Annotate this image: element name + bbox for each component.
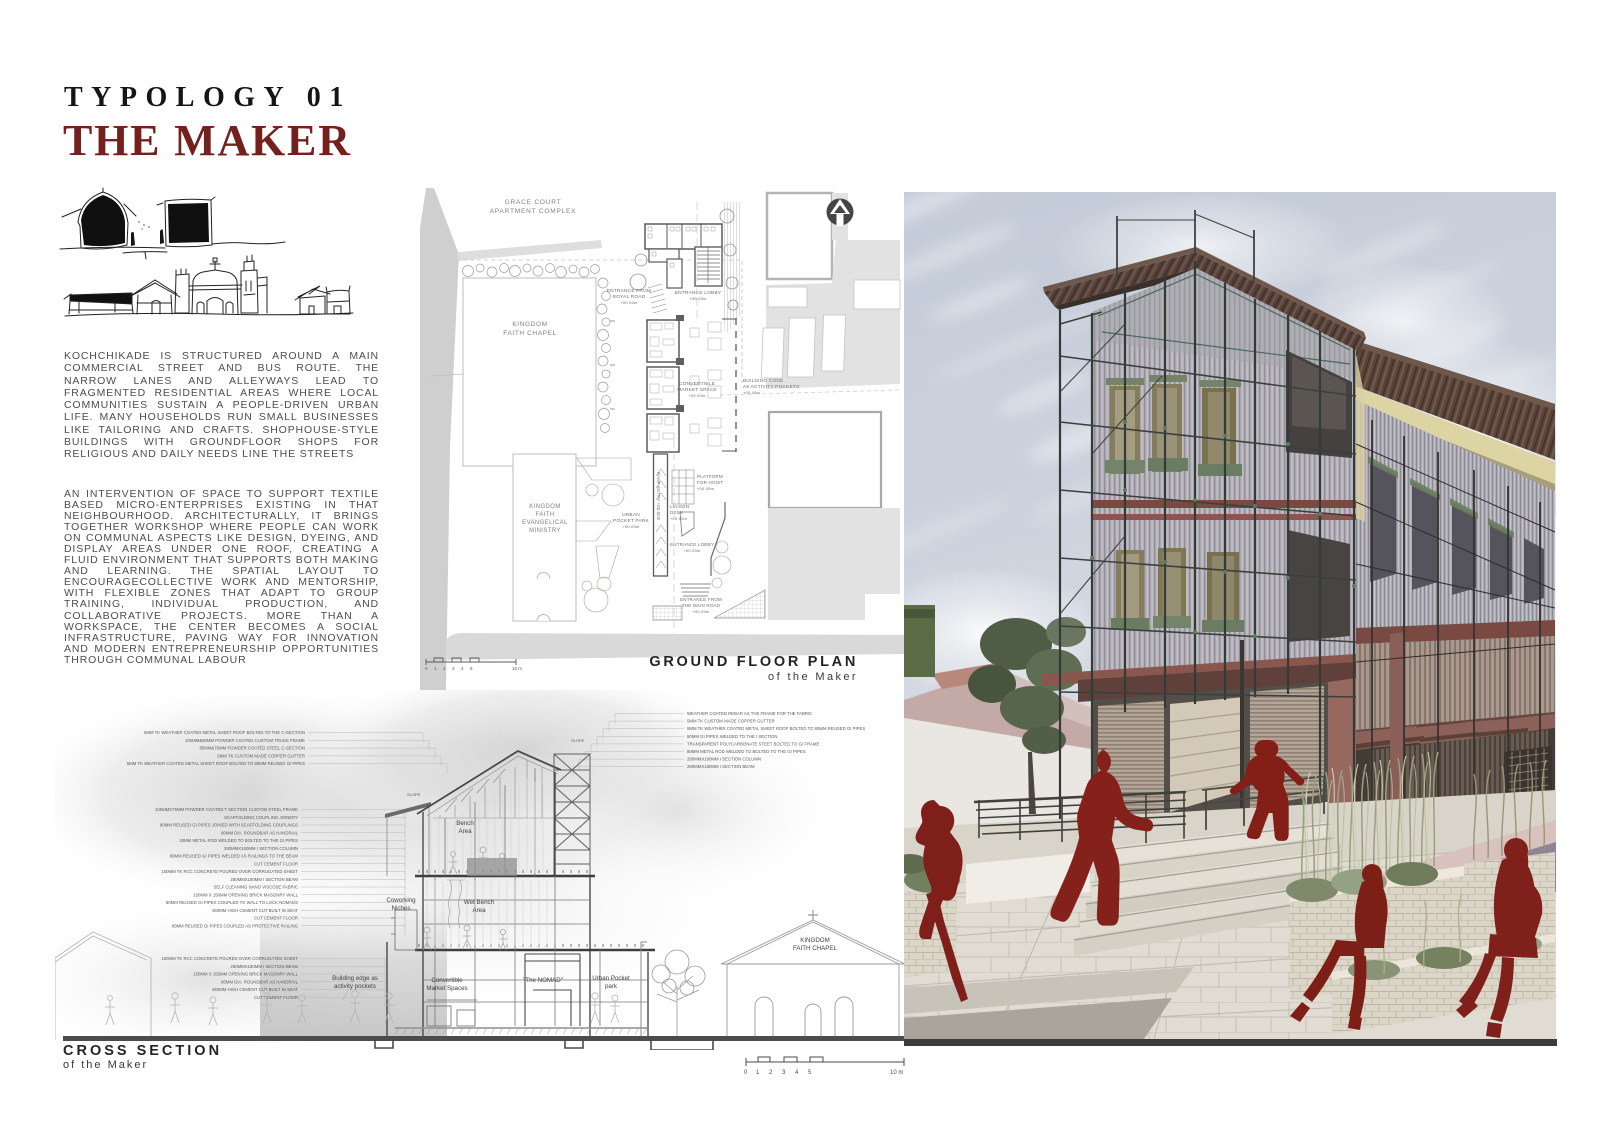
svg-text:CONVERTIBLE: CONVERTIBLE [679, 381, 715, 387]
svg-text:CUT CEMENT FLOOR: CUT CEMENT FLOOR [254, 995, 298, 1000]
svg-text:FAITH CHAPEL: FAITH CHAPEL [503, 330, 556, 337]
svg-text:85MM&70MM POWDER COATED STEEL: 85MM&70MM POWDER COATED STEEL C-SECTION [199, 746, 305, 751]
svg-text:Bench: Bench [456, 820, 474, 827]
svg-text:APARTMENT COMPLEX: APARTMENT COMPLEX [490, 208, 577, 215]
svg-text:Urban Pocket: Urban Pocket [592, 975, 630, 982]
svg-text:150MM X 150MM OPENING BRICK MA: 150MM X 150MM OPENING BRICK MASONRY WALL [193, 972, 298, 977]
svg-text:Coworking: Coworking [386, 897, 416, 904]
svg-text:KINGDOM: KINGDOM [529, 504, 560, 510]
svg-text:280MMX180MM I SECTION COLUMN: 280MMX180MM I SECTION COLUMN [224, 846, 298, 851]
svg-text:150MM TK RCC CONCRETE POURED O: 150MM TK RCC CONCRETE POURED OVER CORRUG… [161, 956, 298, 961]
svg-text:CUT CEMENT FLOOR: CUT CEMENT FLOOR [254, 916, 298, 921]
svg-text:100MM&80MM POWDER COATED CUSTO: 100MM&80MM POWDER COATED CUSTOM TRUSS FR… [185, 738, 305, 743]
svg-text:PLATFORM: PLATFORM [697, 474, 723, 479]
svg-text:ENTRANCE FROM: ENTRANCE FROM [607, 288, 651, 294]
svg-text:10 m: 10 m [890, 1070, 903, 1076]
svg-text:LIAISON: LIAISON [670, 504, 689, 509]
svg-text:5: 5 [808, 1070, 812, 1076]
svg-text:SELF CLEANING NANO VISCOSE FAB: SELF CLEANING NANO VISCOSE FABRIC [213, 885, 298, 890]
svg-text:URBAN: URBAN [622, 512, 640, 518]
svg-text:park: park [605, 983, 618, 990]
svg-text:ENTRANCE LOBBY: ENTRANCE LOBBY [670, 542, 714, 547]
svg-text:Wet Bench: Wet Bench [464, 899, 495, 906]
svg-text:activity pockets: activity pockets [334, 983, 376, 990]
svg-text:5MM TK WEATHER COATED METAL SH: 5MM TK WEATHER COATED METAL SHEET ROOF B… [127, 761, 305, 766]
svg-text:80MM METAL ROD WELDED TO BOLTE: 80MM METAL ROD WELDED TO BOLTED TO THE G… [687, 749, 806, 754]
svg-text:5MM TK CUSTOM MADE COPPER GUTT: 5MM TK CUSTOM MADE COPPER GUTTER [687, 719, 775, 724]
svg-text:SLOPE: SLOPE [407, 792, 421, 797]
svg-text:MINISTRY: MINISTRY [529, 528, 561, 534]
svg-text:4: 4 [795, 1070, 799, 1076]
svg-text:80MM DIA. ROUNDBAR AS HANDRAIL: 80MM DIA. ROUNDBAR AS HANDRAIL [221, 830, 298, 835]
svg-text:+00.00m: +00.00m [670, 516, 688, 521]
svg-text:450MM HIGH CEMENT CUT BUILT IN: 450MM HIGH CEMENT CUT BUILT IN SEAT [212, 987, 298, 992]
svg-text:280MMX180MM I SECTION BEAM: 280MMX180MM I SECTION BEAM [230, 877, 298, 882]
svg-text:5: 5 [470, 666, 473, 671]
svg-text:KINGDOM: KINGDOM [800, 937, 830, 944]
svg-text:CUT CEMENT FLOOR: CUT CEMENT FLOOR [254, 861, 298, 866]
svg-text:Niches: Niches [392, 905, 411, 912]
svg-text:1: 1 [756, 1070, 760, 1076]
svg-text:0: 0 [744, 1070, 748, 1076]
svg-text:450MM HIGH CEMENT CUT BUILT IN: 450MM HIGH CEMENT CUT BUILT IN SEAT [212, 908, 298, 913]
svg-text:5MM TK CUSTOM MADE COPPER GUTT: 5MM TK CUSTOM MADE COPPER GUTTER [217, 753, 305, 758]
svg-text:+00.00m: +00.00m [743, 390, 761, 395]
svg-text:"The NOMAD": "The NOMAD" [523, 977, 563, 984]
svg-text:+00.00m: +00.00m [622, 524, 640, 529]
svg-text:+00.00m: +00.00m [683, 548, 701, 553]
svg-text:280MMX180MM I SECTION COLUMN: 280MMX180MM I SECTION COLUMN [687, 757, 761, 762]
svg-text:5MM TK WEATHER COATED METAL SH: 5MM TK WEATHER COATED METAL SHEET ROOF B… [687, 726, 865, 731]
svg-text:280MMX180MM I SECTION BEAM: 280MMX180MM I SECTION BEAM [687, 764, 755, 769]
svg-text:GRACE COURT: GRACE COURT [505, 199, 562, 206]
svg-text:+00.00m: +00.00m [692, 609, 710, 614]
svg-text:Building edge as: Building edge as [332, 975, 378, 982]
svg-text:5MM TK WEATHER COATED METAL SH: 5MM TK WEATHER COATED METAL SHEET ROOF B… [144, 730, 305, 735]
svg-text:FAITH CHAPEL: FAITH CHAPEL [793, 945, 838, 952]
svg-text:80MM REUSED GI PIPES WELDED AS: 80MM REUSED GI PIPES WELDED AS RAILINGS … [170, 854, 299, 859]
svg-text:THE MAIN ROAD: THE MAIN ROAD [682, 603, 721, 608]
svg-text:4: 4 [461, 666, 464, 671]
svg-text:Market Spaces: Market Spaces [426, 985, 467, 992]
svg-text:DESK: DESK [670, 510, 683, 515]
svg-text:TRANSPARENT POLYCARBONATE STEE: TRANSPARENT POLYCARBONATE STEET BOLTED T… [687, 741, 819, 746]
svg-text:20MM METAL ROD WELDED TO BOLTE: 20MM METAL ROD WELDED TO BOLTED TO THE G… [179, 838, 298, 843]
svg-text:SCAFFOLDING COUPLING JOINERY: SCAFFOLDING COUPLING JOINERY [224, 815, 298, 820]
svg-text:80MM REUSED GI PIPES COUPLED A: 80MM REUSED GI PIPES COUPLED AS PROTECTI… [172, 923, 299, 928]
svg-text:FAITH: FAITH [535, 512, 554, 518]
svg-text:FOR HOIST: FOR HOIST [697, 480, 723, 485]
svg-text:Convertible: Convertible [431, 977, 463, 984]
svg-text:Area: Area [458, 828, 472, 835]
svg-text:280MMX180MM I SECTION BEAM: 280MMX180MM I SECTION BEAM [230, 964, 298, 969]
svg-text:ENTRANCE FROM: ENTRANCE FROM [680, 597, 722, 602]
svg-text:KINGDOM: KINGDOM [512, 321, 547, 328]
svg-text:80MM DIA. ROUNDBAR AS HANDRAIL: 80MM DIA. ROUNDBAR AS HANDRAIL [221, 979, 298, 984]
svg-text:+00.00m: +00.00m [689, 296, 707, 301]
svg-text:150MM X 150MM OPENING BRICK MA: 150MM X 150MM OPENING BRICK MASONRY WALL [193, 892, 298, 897]
svg-text:+00.00m: +00.00m [688, 393, 706, 398]
svg-text:RAMP ENTRY +00.00m: RAMP ENTRY +00.00m [656, 472, 661, 521]
svg-text:WEATHER COATED REBAR AS THE FR: WEATHER COATED REBAR AS THE FRAME FOR TH… [687, 711, 812, 716]
svg-text:80MM REUSED GI PIPES COUPLED T: 80MM REUSED GI PIPES COUPLED TO WALL TO … [166, 900, 298, 905]
svg-text:80MM REUSED GI PIPES JOINED WI: 80MM REUSED GI PIPES JOINED WITH SCAFFOL… [160, 823, 298, 828]
svg-text:+00.00m: +00.00m [620, 300, 638, 305]
svg-text:BUILDING CODE: BUILDING CODE [743, 378, 783, 384]
svg-text:Area: Area [472, 907, 486, 914]
svg-text:3: 3 [452, 666, 455, 671]
svg-text:100MMX75MM POWDER COATED T SEC: 100MMX75MM POWDER COATED T SECTION CUSTO… [155, 807, 298, 812]
svg-text:EVANGELICAL: EVANGELICAL [522, 520, 568, 526]
svg-text:150MM TK RCC CONCRETE POURED O: 150MM TK RCC CONCRETE POURED OVER CORRUG… [161, 869, 298, 874]
svg-text:SLOPE: SLOPE [571, 738, 585, 743]
svg-text:80MM GI PIPES WELDED TO THE I: 80MM GI PIPES WELDED TO THE I SECTION [687, 734, 778, 739]
svg-text:+00.00m: +00.00m [697, 486, 715, 491]
svg-text:3: 3 [782, 1070, 786, 1076]
svg-text:2: 2 [769, 1070, 773, 1076]
